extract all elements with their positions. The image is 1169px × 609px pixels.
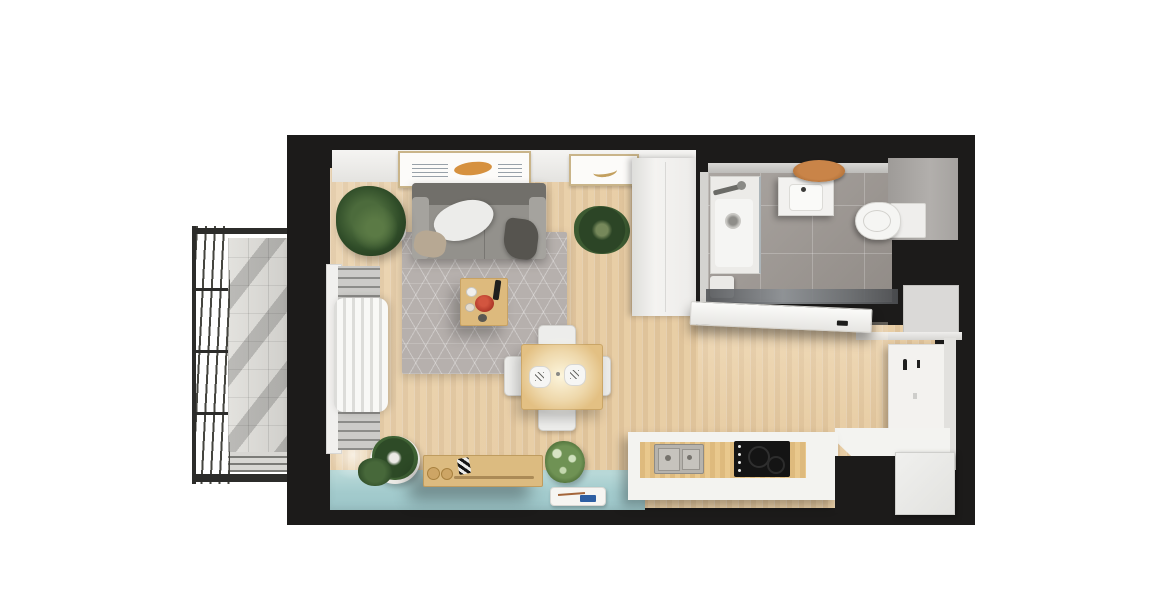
coat-hook-panel [888,344,946,434]
remote [493,280,502,301]
burner-ring-icon [767,456,785,474]
art-lines-right [498,161,522,177]
sink-drain-icon [687,455,692,460]
door-handle-icon [837,320,848,325]
place-setting [564,364,586,386]
cutlery-mark [535,372,544,381]
sofa [412,183,546,259]
cooktop-knob [738,445,741,448]
floorplan-render [0,0,1169,609]
art-orange-oval [453,160,492,177]
balcony-railing-outer-bar [192,226,196,484]
ring-plant-icon [574,206,630,254]
balcony-railing-crossbar [192,288,228,291]
wooden-tray [793,160,845,182]
art-tan-mark [592,164,617,178]
white-cup [466,287,477,297]
balcony-railing-crossbar [192,412,228,415]
sink-drain-icon [665,455,671,461]
bench [423,455,543,487]
kitchen-counter-bottom [628,432,838,500]
curtain [334,298,388,412]
striped-object [457,457,472,475]
faucet-icon [801,187,806,192]
balcony-railing-bottom-bar [192,474,296,482]
toilet [855,202,901,240]
panel-mark [913,393,917,399]
bench-knob [441,468,453,480]
washbasin [778,177,834,216]
cooktop-knob [738,461,741,464]
balcony-railing-crossbar [192,350,228,353]
wall-chunk [835,456,895,513]
blue-card [580,495,596,502]
cooktop-knob [738,453,741,456]
cooktop-knob [738,469,741,472]
red-bowl [475,295,494,312]
cooktop [734,441,790,477]
bathroom-mirror [706,289,898,304]
place-setting [529,366,551,388]
wall-art-small [569,154,639,186]
balcony-floor [228,238,292,454]
small-cup [465,303,475,312]
bench-groove [454,476,534,479]
bench-knob [427,467,440,480]
balcony-railing-top-bar [192,228,296,234]
small-bush-icon [358,458,392,486]
art-lines-left [412,161,448,177]
shower-drain-icon [725,213,741,229]
coat-hook-icon [917,360,920,368]
kitchen-sink [654,444,704,474]
shower-head-icon [737,181,746,190]
entry-alcove [903,285,959,337]
balcony-railing-pickets-icon [196,226,230,484]
stationery-tray [550,487,606,506]
basin [789,184,823,211]
white-cabinet [895,452,955,515]
balcony-floor-shadow-lines [228,452,292,472]
cutlery-mark [570,370,579,379]
shower [710,176,761,274]
bathroom-left-wall-face [700,172,708,302]
table-small-item [556,372,560,376]
variegated-plant-icon [545,441,585,483]
wardrobe [632,158,698,316]
coat-hook-icon [903,359,907,370]
dark-cup [478,314,487,322]
wardrobe-door-seam [665,162,666,312]
shower-tray [715,199,753,267]
coffee-table [460,278,508,326]
toilet-seat-line [863,210,891,232]
